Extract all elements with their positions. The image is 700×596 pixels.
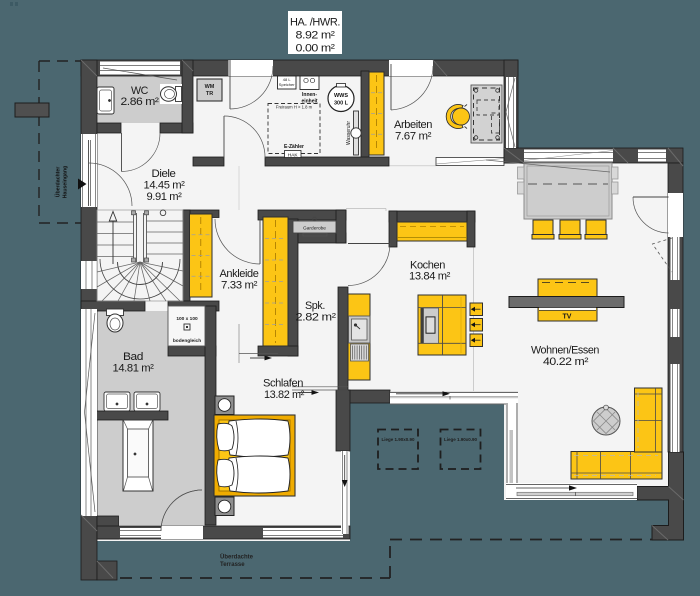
svg-text:bodengleich: bodengleich <box>173 338 201 344</box>
svg-text:Wasseruhr: Wasseruhr <box>346 121 352 145</box>
svg-text:Garderobe: Garderobe <box>303 226 326 232</box>
svg-text:E-Zähler: E-Zähler <box>284 144 304 150</box>
svg-text:14.45 m²: 14.45 m² <box>144 180 186 192</box>
svg-text:100 x 100: 100 x 100 <box>176 316 198 322</box>
svg-text:Liege 1.90x0.90: Liege 1.90x0.90 <box>381 437 415 442</box>
svg-text:7.67 m²: 7.67 m² <box>395 131 432 143</box>
svg-text:TR: TR <box>206 91 213 97</box>
svg-text:Spk.: Spk. <box>305 300 325 312</box>
svg-text:Überdachte: Überdachte <box>220 554 254 561</box>
svg-text:HA. /HWR.: HA. /HWR. <box>290 17 340 29</box>
svg-text:40.22 m²: 40.22 m² <box>543 356 589 368</box>
svg-text:Überdachter: Überdachter <box>55 167 62 198</box>
svg-text:9.91 m²: 9.91 m² <box>147 191 183 203</box>
svg-text:Liege 1.90x0.90: Liege 1.90x0.90 <box>444 437 478 442</box>
svg-text:Ankleide: Ankleide <box>220 268 259 280</box>
svg-text:TV: TV <box>563 314 572 321</box>
svg-text:2.86 m²: 2.86 m² <box>121 96 160 108</box>
svg-text:13.82 m²: 13.82 m² <box>264 389 305 401</box>
svg-text:7.33 m²: 7.33 m² <box>221 280 258 292</box>
svg-text:Bad: Bad <box>123 351 143 363</box>
svg-text:Freiraum H > 1.8 m: Freiraum H > 1.8 m <box>276 105 313 110</box>
svg-text:14.81 m²: 14.81 m² <box>113 363 155 375</box>
svg-text:Schlafen: Schlafen <box>263 378 303 390</box>
svg-text:WM: WM <box>205 84 215 90</box>
svg-text:8.92 m²: 8.92 m² <box>296 30 336 42</box>
svg-text:Speicher: Speicher <box>279 82 295 87</box>
svg-text:0.00 m²: 0.00 m² <box>296 43 336 55</box>
svg-text:300 L: 300 L <box>334 101 349 107</box>
svg-text:13.84 m²: 13.84 m² <box>409 271 451 283</box>
svg-text:WWS: WWS <box>334 93 348 99</box>
svg-text:Terrasse: Terrasse <box>220 562 245 568</box>
svg-text:HAK: HAK <box>288 152 299 158</box>
svg-text:Diele: Diele <box>152 168 176 180</box>
svg-text:Wohnen/Essen: Wohnen/Essen <box>531 345 599 357</box>
svg-text:Innen-: Innen- <box>302 92 317 98</box>
svg-text:2.82 m²: 2.82 m² <box>296 312 337 324</box>
svg-text:Hauseingang: Hauseingang <box>63 166 69 199</box>
svg-text:Arbeiten: Arbeiten <box>394 119 432 131</box>
